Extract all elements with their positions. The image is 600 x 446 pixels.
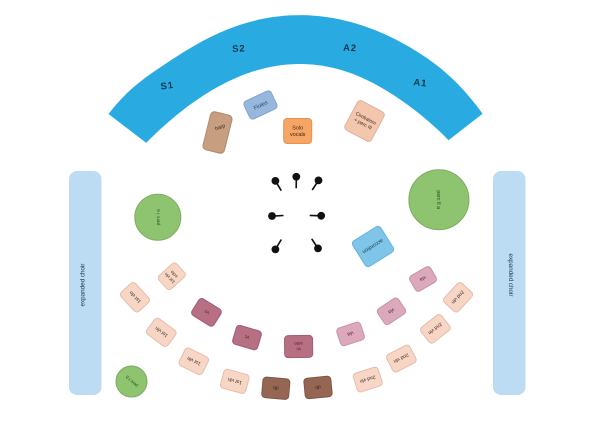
svg-text:expanded choir: expanded choir bbox=[80, 263, 87, 306]
svg-text:A2: A2 bbox=[343, 43, 357, 55]
svg-text:A1: A1 bbox=[413, 77, 428, 90]
svg-text:expanded choir: expanded choir bbox=[507, 253, 514, 296]
svg-text:solo: solo bbox=[294, 341, 303, 346]
svg-text:db: db bbox=[315, 383, 321, 390]
svg-text:perc I a: perc I a bbox=[156, 209, 162, 225]
svg-text:S2: S2 bbox=[232, 43, 246, 55]
svg-text:db: db bbox=[273, 384, 279, 390]
svg-text:Solo: Solo bbox=[292, 126, 303, 132]
svg-text:S1: S1 bbox=[160, 80, 175, 93]
svg-text:vocals: vocals bbox=[290, 132, 306, 138]
svg-text:perc II a: perc II a bbox=[435, 190, 441, 209]
